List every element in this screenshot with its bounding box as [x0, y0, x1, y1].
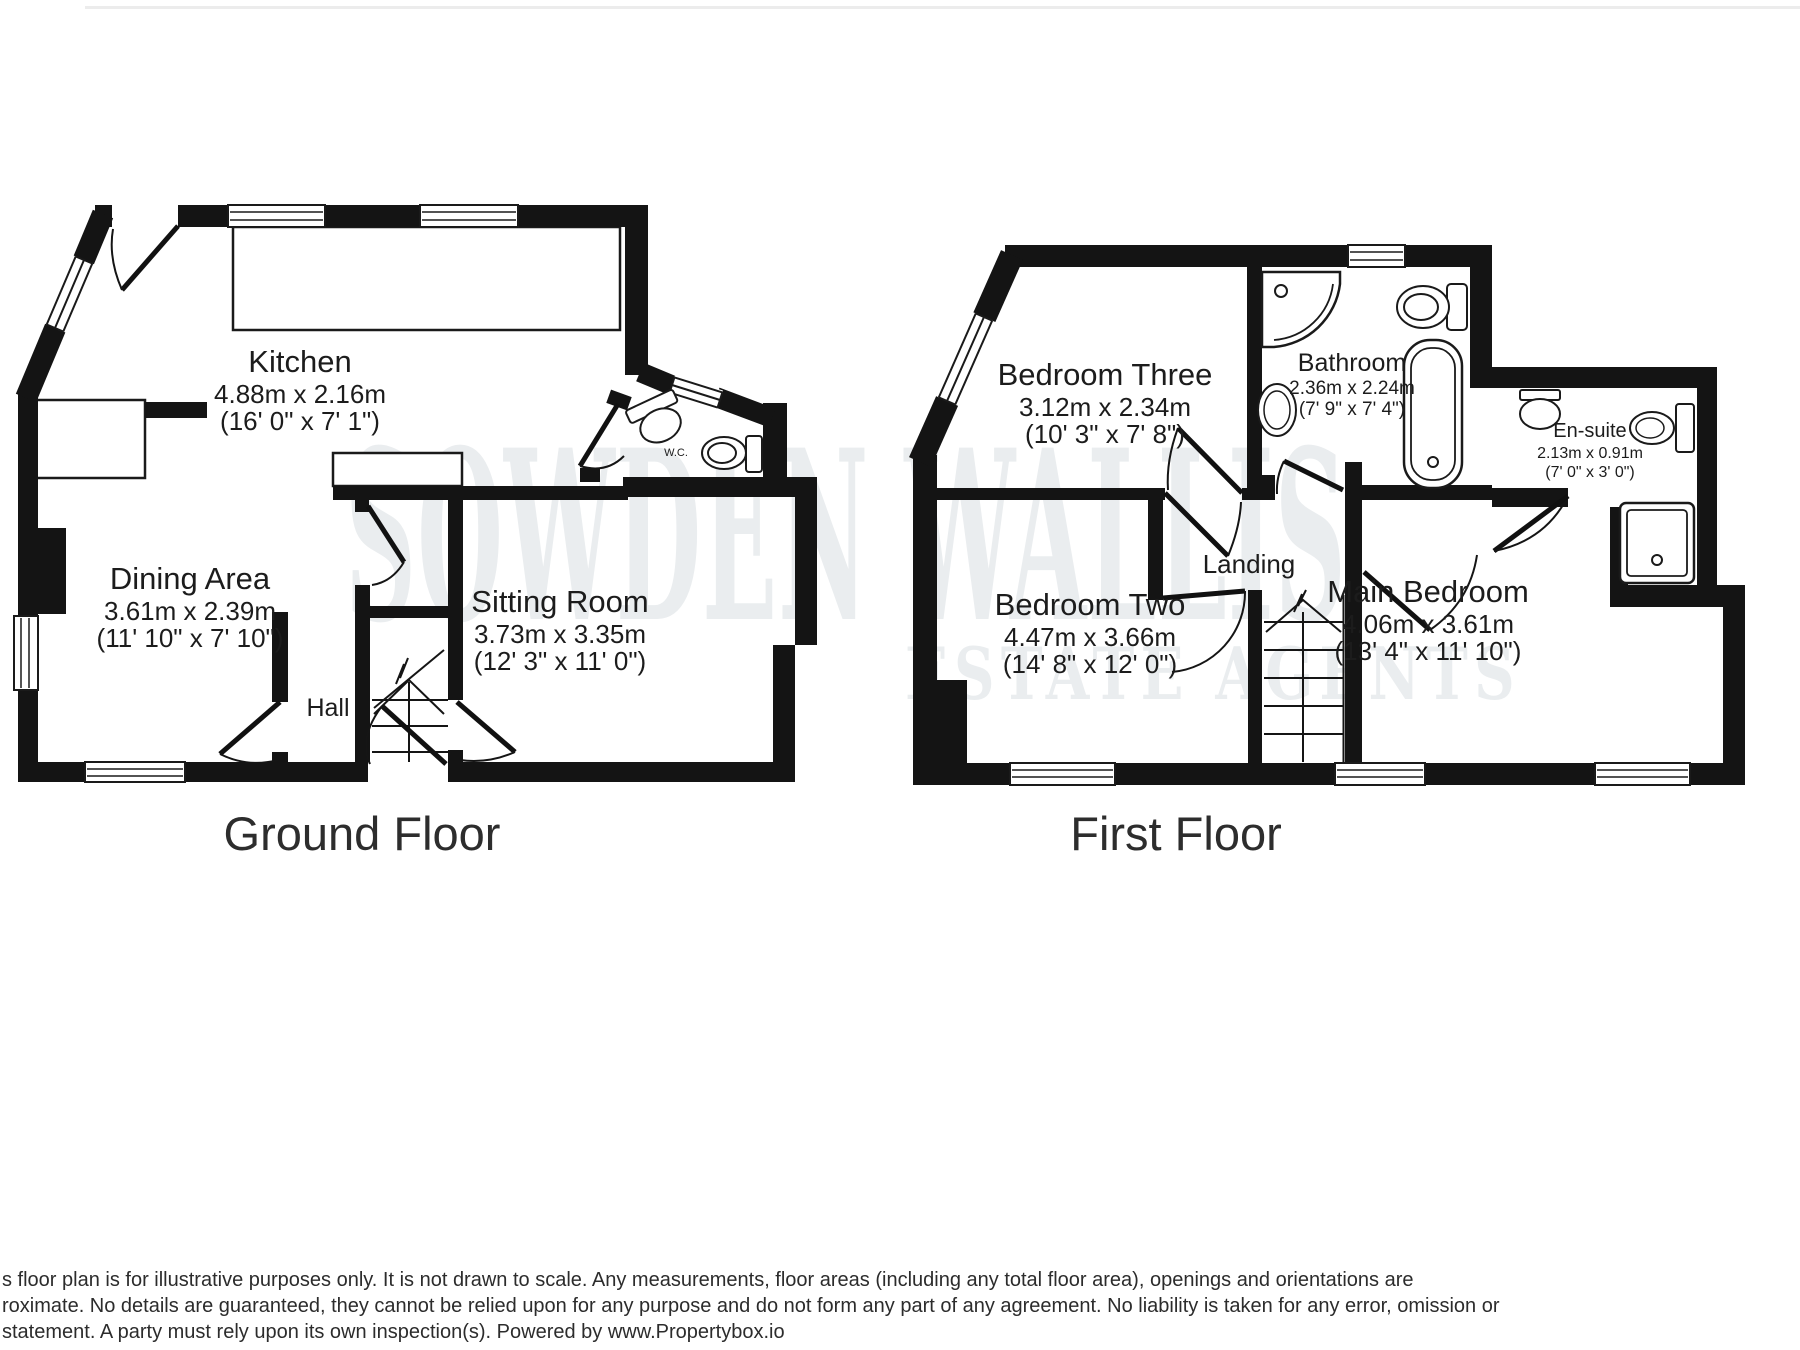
shower-icon: [1262, 272, 1340, 347]
main-bedroom-imperial: (13' 4" x 11' 10"): [1327, 638, 1529, 665]
ensuite-name: En-suite: [1537, 419, 1643, 444]
sitting-name: Sitting Room: [471, 583, 648, 621]
ground-floor-plan: [14, 205, 817, 782]
bedroom-two-name: Bedroom Two: [995, 586, 1186, 624]
room-label-main-bedroom: Main Bedroom 4.06m x 3.61m (13' 4" x 11'…: [1327, 573, 1529, 665]
floorplan-page: SOWDEN WALLIS ESTATE AGENTS: [0, 0, 1800, 1350]
kitchen-imperial: (16' 0" x 7' 1"): [214, 408, 386, 435]
landing-name: Landing: [1203, 549, 1296, 580]
room-label-kitchen: Kitchen 4.88m x 2.16m (16' 0" x 7' 1"): [214, 343, 386, 435]
room-label-sitting: Sitting Room 3.73m x 3.35m (12' 3" x 11'…: [471, 583, 648, 675]
dining-name: Dining Area: [97, 560, 284, 598]
bedroom-two-metric: 4.47m x 3.66m: [995, 624, 1186, 651]
wc-window: [670, 377, 723, 407]
dining-imperial: (11' 10" x 7' 10"): [97, 625, 284, 652]
room-label-ensuite: En-suite 2.13m x 0.91m (7' 0" x 3' 0"): [1537, 419, 1643, 482]
ensuite-imperial: (7' 0" x 3' 0"): [1537, 463, 1643, 482]
room-label-wc: W.C.: [664, 447, 688, 459]
main-bedroom-name: Main Bedroom: [1327, 573, 1529, 611]
ground-floor-title: Ground Floor: [224, 806, 501, 861]
ensuite-shower-icon: [1620, 503, 1694, 583]
kitchen-metric: 4.88m x 2.16m: [214, 381, 386, 408]
sitting-imperial: (12' 3" x 11' 0"): [471, 648, 648, 675]
disclaimer-line-3: statement. A party must rely upon its ow…: [2, 1321, 785, 1344]
main-bedroom-metric: 4.06m x 3.61m: [1327, 611, 1529, 638]
disclaimer-line-2: roximate. No details are guaranteed, the…: [2, 1295, 1500, 1318]
sitting-metric: 3.73m x 3.35m: [471, 621, 648, 648]
diagonal-window-first: [939, 313, 992, 404]
ensuite-metric: 2.13m x 0.91m: [1537, 444, 1643, 463]
wc-toilet-icon: [702, 436, 762, 472]
bedroom-three-metric: 3.12m x 2.34m: [998, 394, 1213, 421]
first-floor-plan: [913, 245, 1745, 785]
first-floor-title: First Floor: [1070, 806, 1282, 861]
dining-metric: 3.61m x 2.39m: [97, 598, 284, 625]
room-label-bedroom-two: Bedroom Two 4.47m x 3.66m (14' 8" x 12' …: [995, 586, 1186, 678]
room-label-bedroom-three: Bedroom Three 3.12m x 2.34m (10' 3" x 7'…: [998, 356, 1213, 448]
floor-plan-drawing: [0, 0, 1800, 1350]
bedroom-three-imperial: (10' 3" x 7' 8"): [998, 421, 1213, 448]
bathroom-imperial: (7' 9" x 7' 4"): [1289, 399, 1415, 420]
hall-name: Hall: [306, 694, 349, 723]
bathroom-toilet-icon: [1397, 284, 1467, 330]
wc-sink-icon: [625, 389, 691, 451]
room-label-dining: Dining Area 3.61m x 2.39m (11' 10" x 7' …: [97, 560, 284, 652]
room-label-hall: Hall: [306, 694, 349, 723]
diagonal-window: [47, 257, 93, 332]
kitchen-name: Kitchen: [214, 343, 386, 381]
disclaimer-line-1: s floor plan is for illustrative purpose…: [2, 1269, 1413, 1292]
worktop-wall-stub: [145, 402, 207, 418]
room-label-bathroom: Bathroom 2.36m x 2.24m (7' 9" x 7' 4"): [1289, 349, 1415, 420]
bathroom-name: Bathroom: [1289, 349, 1415, 378]
bathroom-metric: 2.36m x 2.24m: [1289, 378, 1415, 399]
wc-name: W.C.: [664, 447, 688, 459]
bedroom-two-imperial: (14' 8" x 12' 0"): [995, 651, 1186, 678]
bedroom-three-name: Bedroom Three: [998, 356, 1213, 394]
room-label-landing: Landing: [1203, 549, 1296, 580]
